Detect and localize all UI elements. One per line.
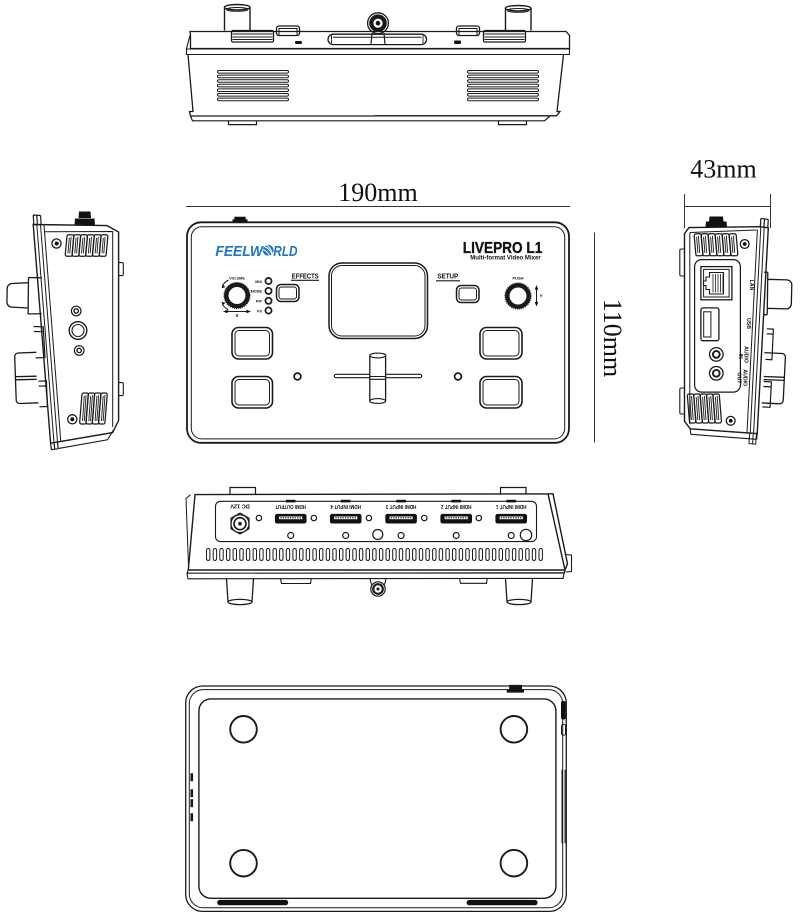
svg-text:PIP: PIP <box>256 300 263 304</box>
svg-text:DC 12V: DC 12V <box>230 503 250 509</box>
svg-text:HDMI INPUT 1: HDMI INPUT 1 <box>496 503 527 509</box>
svg-text:HDMI OUTPUT: HDMI OUTPUT <box>275 503 306 509</box>
svg-text:RLD: RLD <box>273 243 297 260</box>
svg-text:MIX: MIX <box>255 280 262 284</box>
svg-text:IN: IN <box>737 354 743 359</box>
svg-text:FEELW: FEELW <box>215 243 264 260</box>
svg-text:HDMI INPUT 4: HDMI INPUT 4 <box>330 503 361 509</box>
svg-text:x: x <box>236 313 239 319</box>
svg-text:OUT: OUT <box>736 372 742 384</box>
svg-text:SETUP: SETUP <box>437 273 458 280</box>
svg-text:PUSH: PUSH <box>513 276 524 281</box>
svg-text:VOLUME: VOLUME <box>229 275 245 280</box>
svg-text:LAN: LAN <box>748 280 754 291</box>
svg-text:HDMI INPUT 2: HDMI INPUT 2 <box>441 503 472 509</box>
svg-text:Multi-format Video Mixer: Multi-format Video Mixer <box>470 255 541 262</box>
svg-text:FX: FX <box>257 309 262 313</box>
svg-text:190mm: 190mm <box>338 178 417 207</box>
svg-text:HDMI INPUT 3: HDMI INPUT 3 <box>386 503 417 509</box>
svg-text:MODE: MODE <box>251 290 263 294</box>
svg-text:110mm: 110mm <box>598 299 627 377</box>
svg-text:43mm: 43mm <box>690 155 756 184</box>
svg-text:Y: Y <box>539 294 542 299</box>
svg-text:EFFECTS: EFFECTS <box>292 273 319 280</box>
svg-text:USB: USB <box>745 318 751 329</box>
